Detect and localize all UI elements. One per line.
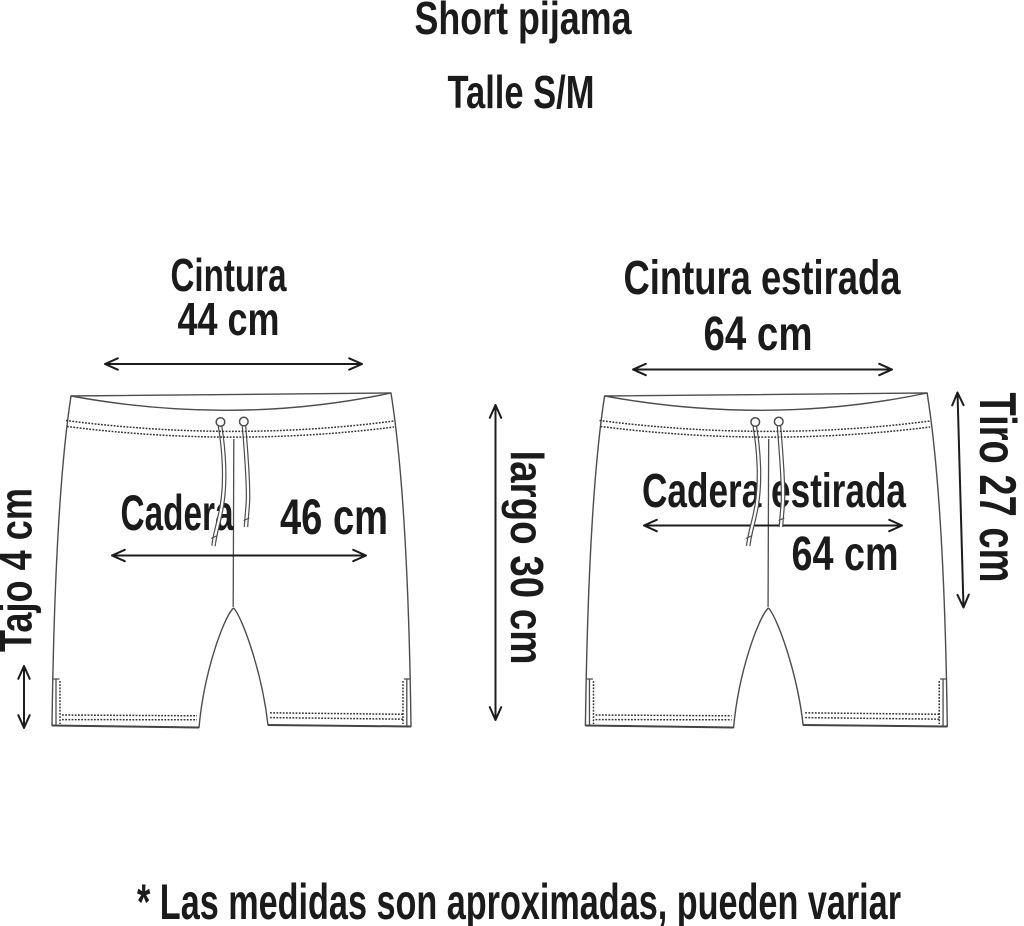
svg-text:largo 30 cm: largo 30 cm — [501, 451, 553, 665]
svg-text:64 cm: 64 cm — [704, 308, 813, 361]
svg-text:Cintura estirada: Cintura estirada — [624, 252, 901, 305]
svg-text:46 cm: 46 cm — [280, 489, 388, 545]
svg-text:64 cm: 64 cm — [792, 528, 899, 581]
svg-text:Talle S/M: Talle S/M — [448, 66, 595, 118]
svg-text:44 cm: 44 cm — [178, 293, 280, 345]
svg-text:* Las medidas son aproximadas,: * Las medidas son aproximadas, pueden va… — [137, 874, 901, 926]
svg-text:Short pijama: Short pijama — [415, 0, 632, 44]
svg-text:Tiro 27 cm: Tiro 27 cm — [968, 393, 1024, 583]
svg-text:Tajo 4 cm: Tajo 4 cm — [0, 488, 42, 652]
svg-text:Cadera estirada: Cadera estirada — [642, 465, 906, 518]
